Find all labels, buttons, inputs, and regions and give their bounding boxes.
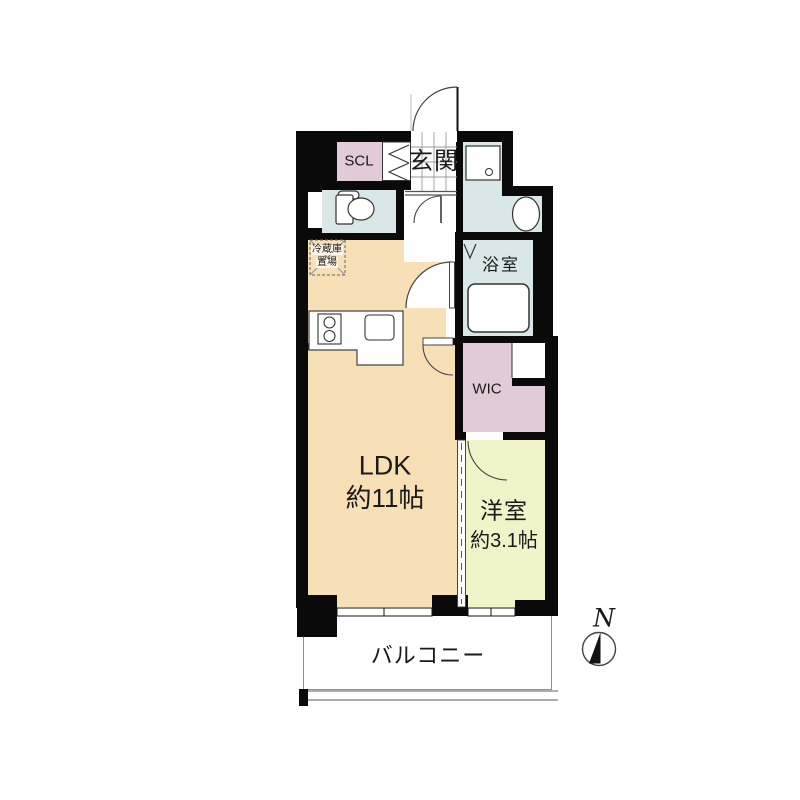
entrance-door-arc (413, 87, 457, 131)
label-entrance: 玄関 (409, 150, 459, 174)
compass-needle (589, 633, 601, 664)
plan-overlay (0, 0, 800, 800)
ldk-door-leaf (450, 262, 455, 308)
label-refrigerator-1: 冷蔵庫 (311, 245, 343, 255)
bedroom-window (468, 608, 515, 616)
label-scl: SCL (344, 154, 373, 169)
sliding-partition (458, 440, 466, 607)
toilet-fixture (336, 191, 374, 224)
wic-door-leaf (423, 338, 453, 345)
bathtub (468, 284, 529, 332)
label-balcony: バルコニー (371, 645, 486, 667)
north-compass (583, 633, 616, 666)
entrance-step-lines (405, 192, 457, 196)
floor-plan: SCL 玄関 浴室 WIC LDK 約11帖 洋室 約3.1帖 バルコニー 冷蔵… (0, 0, 800, 800)
wash-basin (513, 197, 540, 231)
label-ldk-size: 約11帖 (346, 485, 425, 511)
washroom-door-arc (414, 196, 441, 223)
wic-door-arc (423, 345, 453, 375)
label-ldk: LDK (359, 453, 412, 480)
kitchen-sink (365, 315, 394, 340)
stove-burner (324, 331, 335, 342)
label-refrigerator-2: 置場 (316, 258, 338, 268)
bathroom-folding-door (464, 244, 476, 258)
ldk-door-swing (406, 262, 452, 308)
balcony-rail (308, 691, 558, 700)
label-bedroom: 洋室 (480, 500, 528, 523)
ldk-window (337, 608, 432, 616)
bedroom-door-arc (468, 441, 507, 480)
stove-burner (324, 317, 335, 328)
label-bedroom-size: 約3.1帖 (470, 531, 538, 551)
label-wic: WIC (472, 382, 501, 397)
label-bathroom: 浴室 (482, 257, 520, 274)
washer-pan (466, 146, 500, 180)
label-north: N (593, 606, 615, 631)
